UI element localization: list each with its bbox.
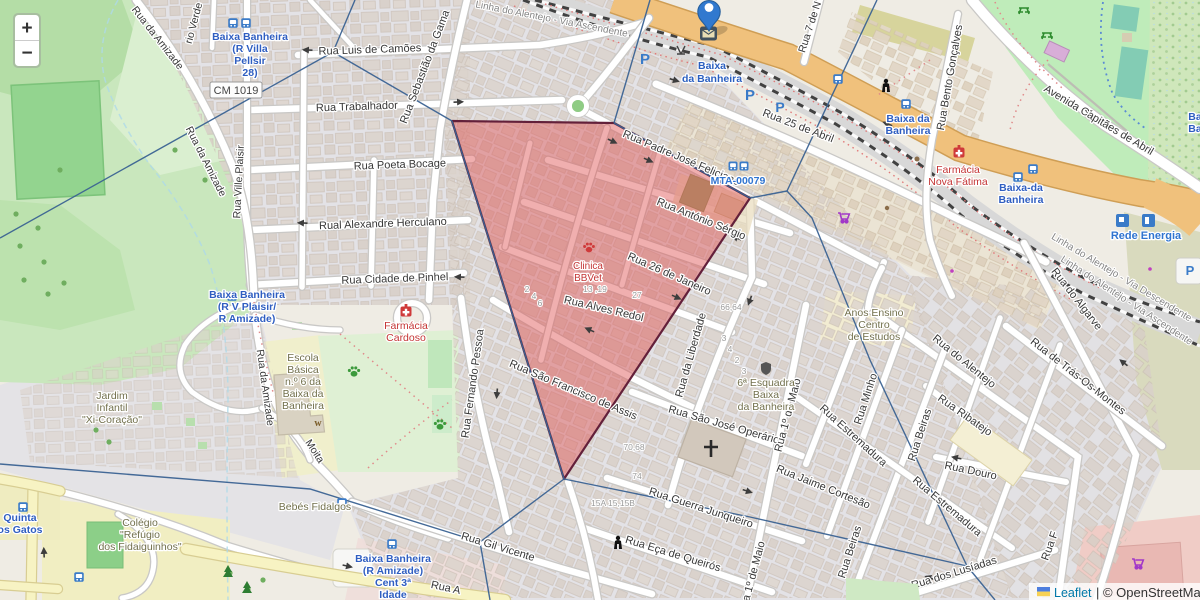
svg-text:Quinta: Quinta [3,512,36,524]
svg-text:27: 27 [632,290,642,300]
svg-text:2: 2 [735,355,740,365]
svg-text:Jardim: Jardim [96,390,128,402]
svg-text:Ba: Ba [1188,111,1200,123]
svg-text:Baixa: Baixa [753,389,779,401]
svg-text:Cardoso: Cardoso [386,332,426,344]
svg-text:Leaflet: Leaflet [1054,586,1092,600]
svg-text:Bebés Fidalgos: Bebés Fidalgos [279,501,351,513]
svg-text:+: + [21,18,32,39]
svg-text:n.º 6 da: n.º 6 da [285,376,321,388]
svg-text:13 ,19: 13 ,19 [583,284,607,294]
svg-text:2: 2 [525,284,530,294]
svg-text:de Estudos: de Estudos [848,331,901,343]
svg-text:CM 1019: CM 1019 [214,85,259,97]
svg-text:da Banheira: da Banheira [738,401,795,413]
svg-text:Colégio: Colégio [122,517,158,529]
svg-text:Infantil: Infantil [97,402,128,414]
svg-text:R Amizade): R Amizade) [219,313,276,325]
svg-text:w: w [314,418,322,429]
svg-text:(R V Plaisir/: (R V Plaisir/ [218,301,276,313]
svg-text:Banheira: Banheira [999,194,1044,206]
svg-text:Idade: Idade [379,589,407,600]
svg-text:Baixa Banheira: Baixa Banheira [212,31,288,43]
svg-text:3: 3 [742,366,747,376]
svg-text:66,64: 66,64 [720,302,742,312]
svg-text:Farmácia: Farmácia [384,320,428,332]
svg-text:"Refúgio: "Refúgio [120,529,160,541]
svg-text:−: − [21,43,32,64]
svg-text:(R Villa: (R Villa [232,43,268,55]
svg-text:Clinica: Clinica [573,261,603,272]
svg-text:os Gatos: os Gatos [0,524,43,536]
svg-text:Ba: Ba [1188,123,1200,135]
svg-text:| © OpenStreetMap: | © OpenStreetMap [1096,585,1200,600]
svg-text:dos Fidaiguinhos": dos Fidaiguinhos" [98,541,181,553]
svg-text:Banheira: Banheira [886,125,931,137]
svg-text:Escola: Escola [287,352,319,364]
svg-text:3: 3 [722,333,727,343]
svg-text:Farmácia: Farmácia [936,164,980,176]
svg-text:Banheira: Banheira [282,400,324,412]
svg-text:P: P [745,87,755,104]
svg-text:70,68: 70,68 [623,442,645,452]
svg-text:(R Amizade): (R Amizade) [363,565,423,577]
svg-text:28): 28) [242,67,257,79]
svg-text:Baixa Banheira: Baixa Banheira [209,289,285,301]
svg-text:Nova Fátima: Nova Fátima [928,176,988,188]
svg-text:74: 74 [632,471,642,481]
svg-text:da Banheira: da Banheira [682,73,742,85]
svg-text:15A 15,15B: 15A 15,15B [591,498,635,508]
svg-text:Básica: Básica [287,364,319,376]
svg-text:6: 6 [538,298,543,308]
svg-text:4: 4 [728,344,733,354]
svg-text:Baixa: Baixa [698,60,726,72]
svg-text:Baixa da: Baixa da [283,388,324,400]
svg-text:P: P [640,51,650,68]
svg-text:6ª Esquadra: 6ª Esquadra [737,377,795,389]
svg-text:P: P [1186,263,1195,278]
svg-text:4: 4 [532,291,537,301]
svg-text:Baixa da: Baixa da [886,113,929,125]
svg-text:BBVet: BBVet [574,273,602,284]
svg-text:Baixa Banheira: Baixa Banheira [355,553,431,565]
svg-text:Rede Energia: Rede Energia [1111,230,1182,242]
svg-text:Pellsir: Pellsir [234,55,266,67]
svg-text:Baixa-da: Baixa-da [999,182,1043,194]
svg-text:"Xi-Coração": "Xi-Coração" [82,414,142,426]
svg-text:Centro: Centro [858,319,890,331]
svg-text:Anos Ensino: Anos Ensino [845,307,904,319]
svg-text:MTA-00079: MTA-00079 [711,175,766,187]
svg-text:Cent 3ª: Cent 3ª [375,577,411,589]
